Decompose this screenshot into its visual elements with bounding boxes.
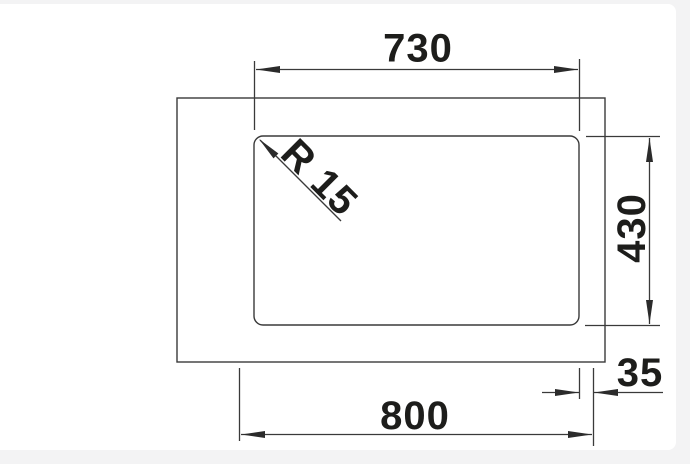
arrow-down-icon [646, 300, 653, 324]
arrow-right-icon [568, 431, 592, 438]
dimension-outer-width: 800 [240, 368, 594, 446]
arrow-left-icon [241, 431, 265, 438]
dimension-label-inner-height: 430 [610, 193, 654, 263]
dimension-inner-width: 730 [255, 27, 580, 132]
arrow-right-icon [554, 66, 578, 73]
arrow-right-icon [555, 389, 579, 396]
arrow-left-icon [256, 66, 280, 73]
drawing-canvas: 730 430 800 35 [0, 0, 690, 464]
arrow-left-icon [594, 389, 618, 396]
arrow-upleft-icon [259, 139, 278, 158]
outer-outline [177, 98, 605, 362]
dimension-label-inner-width: 730 [383, 27, 453, 71]
arrow-up-icon [646, 138, 653, 162]
sink-technical-drawing: 730 430 800 35 [0, 0, 690, 464]
dimension-label-edge-offset: 35 [617, 351, 664, 395]
radius-label: R 15 [272, 131, 366, 225]
dimension-label-outer-width: 800 [380, 394, 450, 438]
dimension-edge-offset: 35 [542, 351, 663, 399]
radius-callout: R 15 [259, 131, 366, 225]
dimension-inner-height: 430 [585, 137, 660, 326]
